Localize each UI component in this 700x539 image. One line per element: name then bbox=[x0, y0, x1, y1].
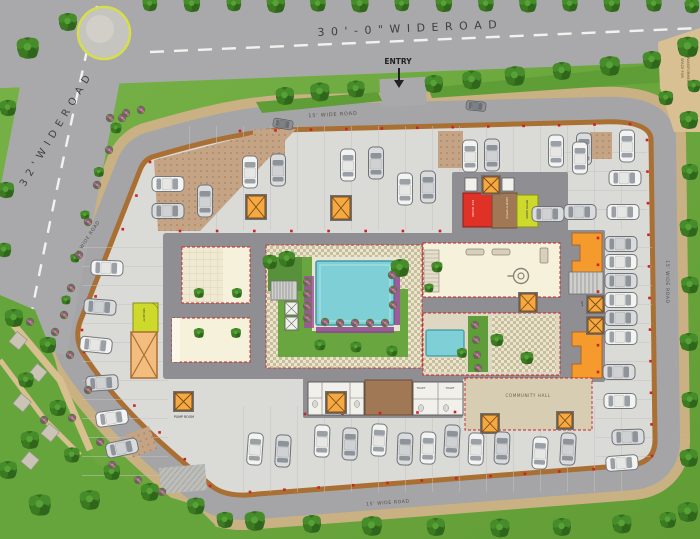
flower-bed bbox=[106, 114, 114, 122]
flower-bed bbox=[68, 414, 76, 422]
tree bbox=[0, 100, 16, 116]
flower-bed bbox=[381, 319, 389, 327]
tree bbox=[310, 83, 329, 102]
flower-bed bbox=[67, 284, 75, 292]
column-marker bbox=[416, 127, 419, 130]
column-marker bbox=[597, 344, 600, 347]
tree bbox=[425, 75, 444, 93]
flower-strip bbox=[316, 327, 394, 333]
column-marker bbox=[290, 230, 293, 233]
tree bbox=[659, 512, 676, 528]
car bbox=[532, 437, 549, 470]
flower-bed bbox=[473, 351, 481, 359]
flower-bed bbox=[26, 318, 34, 326]
electric-room bbox=[463, 193, 492, 227]
flower-bed bbox=[105, 146, 113, 154]
tree bbox=[245, 511, 265, 531]
tree bbox=[80, 490, 100, 510]
paver-patch bbox=[253, 129, 285, 155]
paver-patch bbox=[438, 131, 463, 168]
car bbox=[604, 394, 636, 409]
car bbox=[420, 432, 436, 465]
paver-patch bbox=[590, 132, 612, 159]
flower-bed bbox=[336, 319, 344, 327]
tree bbox=[303, 515, 322, 533]
toilet-label-1: TOILET bbox=[416, 386, 425, 390]
column-marker bbox=[253, 230, 256, 233]
car bbox=[152, 177, 184, 192]
column-marker bbox=[216, 230, 219, 233]
flower-bed bbox=[303, 302, 311, 310]
column-marker bbox=[593, 123, 596, 126]
column-marker bbox=[364, 230, 367, 233]
tree bbox=[5, 309, 24, 327]
column-marker bbox=[274, 129, 277, 132]
toilet-label-2: TOILET bbox=[445, 386, 454, 390]
car bbox=[605, 330, 637, 345]
column-marker bbox=[317, 486, 320, 489]
electric-room-label: ELE. ROOM bbox=[471, 200, 475, 217]
car bbox=[341, 149, 356, 181]
tree bbox=[462, 71, 481, 90]
column-marker bbox=[597, 290, 600, 293]
pump-room-label: PUMP ROOM bbox=[174, 415, 194, 419]
lift-label: LIFT bbox=[580, 301, 584, 307]
car bbox=[246, 433, 263, 466]
tree bbox=[17, 37, 39, 59]
car bbox=[463, 140, 478, 172]
entry-label: ENTRY bbox=[384, 57, 412, 66]
site-plan: 3 0 ' - 0 " W I D E R O A D 3 2 ' W I D … bbox=[0, 0, 700, 539]
column-marker bbox=[649, 328, 652, 331]
column-marker bbox=[451, 126, 454, 129]
flower-bed bbox=[84, 218, 92, 226]
lift bbox=[556, 411, 574, 430]
tree bbox=[362, 516, 382, 536]
car bbox=[468, 433, 484, 466]
flower-bed bbox=[40, 416, 48, 424]
swimming-pool bbox=[316, 261, 394, 325]
tree bbox=[0, 243, 11, 257]
tree bbox=[658, 91, 673, 105]
tree bbox=[394, 0, 409, 11]
courtyard-stair bbox=[271, 281, 297, 300]
column-marker bbox=[345, 128, 348, 131]
column-marker bbox=[81, 329, 84, 332]
column-marker bbox=[179, 230, 182, 233]
column-marker bbox=[381, 127, 384, 130]
column-marker bbox=[133, 404, 136, 407]
flower-bed bbox=[389, 286, 397, 294]
flower-bed bbox=[474, 364, 482, 372]
column-marker bbox=[135, 194, 138, 197]
column-marker bbox=[327, 230, 330, 233]
car bbox=[549, 135, 564, 167]
car bbox=[605, 293, 637, 308]
tree bbox=[490, 334, 503, 347]
tree bbox=[681, 164, 698, 180]
car bbox=[605, 237, 637, 252]
column-marker bbox=[651, 455, 654, 458]
flower-bed bbox=[137, 106, 145, 114]
flower-bed bbox=[51, 328, 59, 336]
courtyard-lift-1 bbox=[285, 302, 298, 315]
flower-bed bbox=[84, 386, 92, 394]
car bbox=[612, 429, 645, 445]
column-marker bbox=[386, 482, 389, 485]
tree bbox=[276, 87, 295, 105]
tree bbox=[490, 519, 509, 538]
tree bbox=[427, 518, 446, 536]
flower-bed bbox=[122, 109, 130, 117]
hall-lower bbox=[172, 318, 250, 362]
hatch-patch bbox=[159, 464, 207, 494]
tree bbox=[61, 296, 70, 305]
column-marker bbox=[209, 485, 212, 488]
column-marker bbox=[597, 237, 600, 240]
road-label-inner-right: 15' WIDE ROAD bbox=[664, 260, 670, 304]
tree bbox=[350, 342, 361, 353]
ramp bbox=[131, 332, 157, 378]
car bbox=[369, 147, 384, 179]
column-marker bbox=[489, 475, 492, 478]
car bbox=[560, 433, 577, 466]
car bbox=[342, 428, 358, 461]
column-marker bbox=[650, 423, 653, 426]
column-marker bbox=[310, 128, 313, 131]
column-marker bbox=[149, 161, 152, 164]
tree bbox=[216, 512, 233, 528]
tree bbox=[21, 431, 40, 449]
tree bbox=[680, 219, 699, 237]
society-office bbox=[492, 193, 517, 228]
tree bbox=[386, 346, 397, 357]
flower-bed bbox=[351, 319, 359, 327]
tree bbox=[457, 348, 467, 358]
car bbox=[84, 298, 117, 315]
car bbox=[444, 425, 461, 458]
security-label: SECURITY bbox=[142, 308, 146, 322]
tree bbox=[431, 262, 442, 273]
toilet-cell bbox=[502, 178, 514, 191]
flower-bed bbox=[134, 476, 142, 484]
flower-bed bbox=[321, 318, 329, 326]
car bbox=[605, 255, 637, 270]
car bbox=[620, 130, 635, 162]
column-marker bbox=[421, 479, 424, 482]
car bbox=[466, 100, 487, 111]
tree bbox=[347, 80, 365, 97]
column-marker bbox=[283, 488, 286, 491]
column-marker bbox=[558, 470, 561, 473]
tree bbox=[681, 392, 698, 408]
car bbox=[243, 156, 258, 188]
tree bbox=[278, 251, 295, 267]
car bbox=[605, 311, 637, 326]
flower-bed bbox=[93, 181, 101, 189]
flower-bed bbox=[471, 321, 479, 329]
flower-bed bbox=[303, 314, 311, 322]
car bbox=[397, 433, 413, 466]
tree bbox=[18, 372, 34, 387]
flower-bed bbox=[472, 336, 480, 344]
lift bbox=[173, 391, 194, 412]
car bbox=[79, 336, 112, 354]
column-marker bbox=[646, 170, 649, 173]
column-marker bbox=[439, 230, 442, 233]
flower-bed bbox=[388, 271, 396, 279]
lift bbox=[518, 292, 538, 313]
flower-bed bbox=[108, 461, 116, 469]
car bbox=[605, 274, 637, 289]
flower-bed bbox=[158, 488, 166, 496]
car bbox=[152, 204, 184, 219]
car bbox=[564, 205, 596, 220]
column-marker bbox=[184, 458, 187, 461]
tree bbox=[680, 333, 699, 351]
lift bbox=[480, 413, 500, 434]
column-marker bbox=[646, 139, 649, 142]
car bbox=[271, 154, 286, 186]
car bbox=[485, 139, 500, 171]
flower-bed bbox=[366, 319, 374, 327]
roundabout bbox=[78, 7, 130, 59]
toilet-cell bbox=[465, 178, 477, 191]
car bbox=[609, 171, 641, 186]
column-marker bbox=[416, 411, 419, 414]
column-marker bbox=[239, 130, 242, 133]
flower-bed bbox=[96, 438, 104, 446]
column-marker bbox=[597, 371, 600, 374]
column-marker bbox=[648, 265, 651, 268]
column-marker bbox=[524, 473, 527, 476]
tree bbox=[520, 352, 533, 365]
column-marker bbox=[648, 297, 651, 300]
flower-bed bbox=[66, 351, 74, 359]
tree bbox=[142, 0, 157, 11]
transformer-label-2: TRANSFORMER bbox=[686, 54, 690, 83]
column-marker bbox=[597, 264, 600, 267]
lift bbox=[245, 194, 267, 220]
tree bbox=[612, 515, 631, 534]
column-marker bbox=[558, 124, 561, 127]
tree bbox=[110, 123, 121, 134]
car bbox=[421, 171, 436, 203]
transformer-label-1: SPACE FOR bbox=[680, 58, 684, 78]
column-marker bbox=[649, 360, 652, 363]
tree bbox=[681, 276, 699, 293]
column-marker bbox=[629, 123, 632, 126]
society-office-label: SOCIETY OFFICE bbox=[505, 197, 509, 219]
column-marker bbox=[592, 468, 595, 471]
lift bbox=[586, 295, 605, 314]
tree bbox=[39, 337, 56, 353]
car bbox=[314, 425, 330, 458]
meter-room-label: METER ROOM bbox=[525, 200, 529, 219]
tree bbox=[553, 62, 572, 80]
car bbox=[606, 454, 639, 471]
lift bbox=[330, 195, 352, 221]
tree bbox=[0, 461, 17, 479]
flower-bed bbox=[389, 301, 397, 309]
tree bbox=[684, 0, 699, 13]
flower-bed bbox=[303, 278, 311, 286]
tree bbox=[194, 328, 204, 338]
car bbox=[275, 435, 292, 468]
tree bbox=[231, 328, 241, 338]
column-marker bbox=[650, 392, 653, 395]
column-marker bbox=[454, 411, 457, 414]
store-room bbox=[365, 380, 412, 415]
car bbox=[603, 365, 635, 380]
tree bbox=[232, 288, 242, 298]
column-marker bbox=[455, 477, 458, 480]
tree bbox=[643, 51, 662, 69]
column-marker bbox=[352, 484, 355, 487]
column-marker bbox=[647, 234, 650, 237]
tree bbox=[505, 66, 525, 86]
lift bbox=[481, 175, 501, 195]
tree bbox=[187, 497, 205, 514]
tree bbox=[29, 494, 51, 516]
lift bbox=[325, 391, 347, 414]
community-hall-label: COMMUNITY HALL bbox=[505, 393, 550, 398]
car bbox=[573, 142, 588, 174]
car bbox=[532, 207, 564, 222]
tree bbox=[424, 284, 433, 293]
lower-courtyard bbox=[423, 313, 560, 375]
tree bbox=[226, 0, 241, 11]
gymnasium bbox=[423, 243, 560, 297]
courtyard-lift-2 bbox=[285, 317, 298, 330]
car bbox=[494, 432, 510, 465]
tree bbox=[94, 167, 104, 177]
car bbox=[91, 260, 124, 276]
tree bbox=[314, 340, 325, 351]
tree bbox=[262, 255, 277, 269]
column-marker bbox=[94, 295, 97, 298]
tree bbox=[600, 56, 620, 76]
tree bbox=[553, 518, 572, 536]
column-marker bbox=[122, 228, 125, 231]
column-marker bbox=[522, 125, 525, 128]
column-marker bbox=[379, 412, 382, 415]
tree bbox=[680, 449, 699, 467]
column-marker bbox=[647, 202, 650, 205]
tree bbox=[680, 111, 699, 129]
flower-bed bbox=[60, 311, 68, 319]
car bbox=[198, 185, 213, 217]
tree bbox=[49, 400, 66, 416]
column-marker bbox=[158, 431, 161, 434]
tree bbox=[678, 502, 698, 522]
car bbox=[398, 173, 413, 205]
site-plan-svg: 3 0 ' - 0 " W I D E R O A D 3 2 ' W I D … bbox=[0, 0, 700, 539]
column-marker bbox=[304, 413, 307, 416]
column-marker bbox=[487, 125, 490, 128]
tree bbox=[59, 13, 78, 31]
tree bbox=[0, 182, 14, 198]
tree bbox=[194, 288, 204, 298]
car bbox=[371, 424, 388, 457]
lift bbox=[586, 316, 605, 335]
flower-bed bbox=[303, 290, 311, 298]
tree bbox=[64, 447, 80, 462]
tree bbox=[141, 483, 160, 501]
car bbox=[607, 205, 639, 220]
column-marker bbox=[402, 230, 405, 233]
column-marker bbox=[249, 491, 252, 494]
